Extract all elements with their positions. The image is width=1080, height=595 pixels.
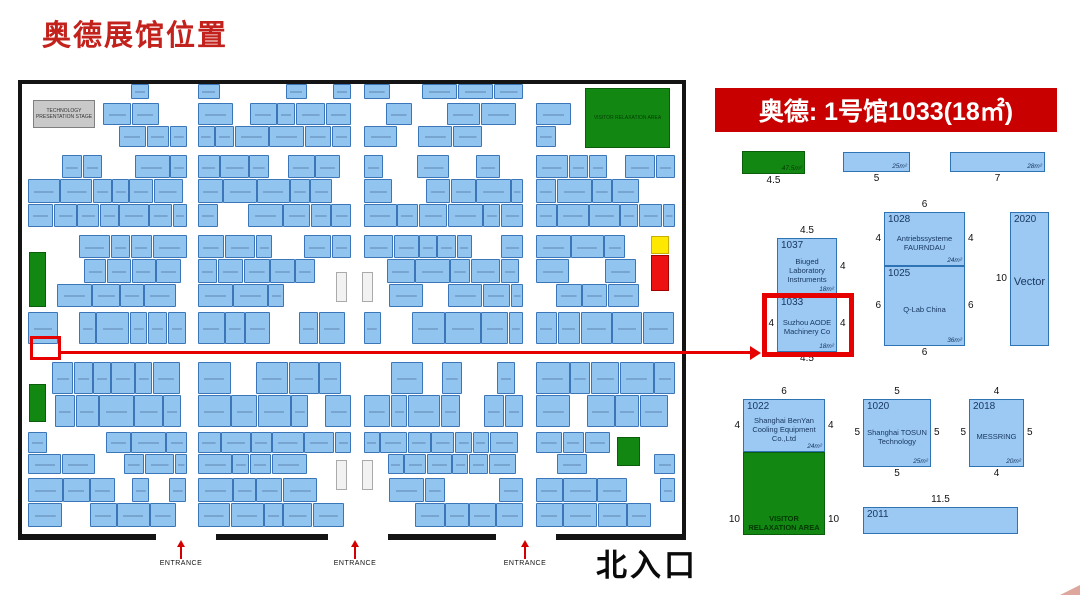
booth-area: 24m² — [947, 257, 962, 264]
map-booth — [198, 432, 221, 453]
map-booth — [471, 259, 501, 282]
map-booth — [135, 155, 170, 178]
map-booth — [93, 179, 112, 202]
map-booth — [149, 204, 172, 227]
map-booth — [612, 312, 642, 344]
map-booth — [481, 103, 516, 125]
map-booth — [319, 362, 341, 394]
map-booth — [333, 84, 351, 99]
booth-name: MESSRING — [974, 423, 1018, 443]
map-booth — [232, 454, 249, 475]
map-booth — [154, 179, 183, 202]
map-booth — [145, 454, 175, 475]
map-booth — [431, 432, 454, 453]
booth-area: 47.5m² — [782, 165, 802, 172]
map-booth — [608, 284, 639, 307]
red-booth — [651, 255, 669, 291]
map-booth — [250, 454, 271, 475]
map-booth — [288, 155, 315, 178]
map-booth — [536, 126, 556, 148]
map-booth — [331, 204, 351, 227]
map-booth — [57, 284, 92, 307]
map-booth — [415, 503, 444, 527]
dimension-label: 5 — [934, 427, 948, 438]
map-booth — [269, 126, 304, 148]
map-booth — [96, 312, 129, 344]
map-booth — [198, 312, 225, 344]
map-booth — [497, 362, 515, 394]
map-booth — [563, 478, 597, 502]
entrance-label: ENTRANCE — [495, 560, 555, 567]
map-booth — [166, 432, 187, 453]
map-booth — [569, 155, 588, 178]
booth-location-banner: 奥德: 1号馆1033(18㎡) — [715, 88, 1057, 132]
map-booth — [170, 126, 188, 148]
map-booth — [442, 362, 462, 394]
map-booth — [447, 103, 481, 125]
dimension-label: 4.5 — [777, 225, 837, 236]
map-booth — [605, 259, 636, 282]
map-booth — [220, 155, 249, 178]
technology-presentation-stage: TECHNOLOGY PRESENTATION STAGE — [33, 100, 95, 128]
detail-highlight-box — [762, 293, 854, 357]
map-booth — [563, 432, 584, 453]
map-booth — [380, 432, 407, 453]
map-booth — [268, 284, 284, 307]
map-booth — [144, 284, 176, 307]
map-booth — [536, 259, 569, 282]
green-area — [29, 384, 46, 422]
green-area — [617, 437, 640, 466]
map-booth — [585, 432, 611, 453]
map-booth — [455, 432, 473, 453]
map-booth — [536, 179, 556, 202]
map-booth — [233, 284, 268, 307]
map-booth — [536, 432, 562, 453]
map-booth — [364, 126, 397, 148]
map-booth — [591, 362, 620, 394]
dimension-label: 11.5 — [863, 494, 1018, 505]
map-booth — [452, 454, 468, 475]
map-booth — [490, 432, 519, 453]
map-booth — [557, 204, 588, 227]
map-booth — [223, 179, 256, 202]
detail-booth-1022: 1022Shanghai BenYan Cooling Equipment Co… — [743, 399, 825, 452]
map-booth — [536, 362, 570, 394]
map-booth — [225, 235, 256, 258]
map-booth — [326, 103, 352, 125]
map-booth — [198, 155, 220, 178]
map-booth — [244, 259, 270, 282]
map-booth — [445, 312, 480, 344]
map-booth — [77, 204, 99, 227]
green-area — [29, 252, 46, 307]
booth-number: 1022 — [747, 401, 769, 412]
map-booth — [132, 259, 156, 282]
map-booth — [557, 179, 592, 202]
map-booth — [112, 179, 128, 202]
map-booth — [90, 478, 115, 502]
dimension-label: 5 — [863, 468, 931, 479]
map-booth — [389, 478, 424, 502]
map-booth — [256, 478, 282, 502]
map-booth — [283, 478, 318, 502]
map-booth — [418, 126, 453, 148]
map-booth — [249, 155, 269, 178]
map-booth — [419, 235, 437, 258]
map-booth — [364, 179, 392, 202]
map-booth — [251, 432, 272, 453]
map-booth — [332, 126, 352, 148]
map-booth — [536, 204, 557, 227]
map-bottom-border-segment — [388, 534, 496, 540]
booth-area: 36m² — [947, 337, 962, 344]
map-booth — [408, 432, 431, 453]
map-booth — [52, 362, 73, 394]
connector-arrow — [750, 346, 761, 360]
map-booth — [100, 204, 119, 227]
dimension-label: 6 — [743, 386, 825, 397]
map-booth — [258, 395, 291, 427]
dimension-label: 5 — [847, 427, 860, 438]
map-booth — [84, 259, 106, 282]
map-booth — [597, 478, 626, 502]
map-booth — [489, 454, 517, 475]
booth-area: 28m² — [1027, 163, 1042, 170]
map-booth — [289, 362, 319, 394]
booth-number: 2020 — [1014, 214, 1036, 225]
map-booth — [270, 259, 295, 282]
map-booth — [76, 395, 99, 427]
map-booth — [536, 235, 571, 258]
map-booth — [28, 204, 53, 227]
map-booth — [131, 84, 149, 99]
map-booth — [198, 478, 233, 502]
map-booth — [92, 284, 120, 307]
map-booth — [663, 204, 676, 227]
map-booth — [250, 103, 277, 125]
booth-area: 25m² — [892, 163, 907, 170]
map-booth — [536, 103, 571, 125]
map-booth — [473, 432, 489, 453]
map-booth — [231, 395, 257, 427]
booth-number: 1020 — [867, 401, 889, 412]
map-booth — [117, 503, 150, 527]
map-booth — [484, 395, 504, 427]
dimension-label: 6 — [968, 300, 982, 311]
map-booth — [391, 362, 423, 394]
map-booth — [198, 362, 231, 394]
map-booth — [28, 454, 61, 475]
map-booth — [422, 84, 457, 99]
map-booth — [90, 503, 117, 527]
visitor-relaxation-area: VISITOR RELAXATION AREA — [585, 88, 670, 148]
detail-booth-strip-28: 28m² — [950, 152, 1045, 172]
map-booth — [571, 235, 604, 258]
map-booth — [604, 235, 625, 258]
map-booth — [107, 259, 131, 282]
detail-booth-1025: 1025Q-Lab China36m² — [884, 266, 965, 346]
map-booth — [589, 155, 608, 178]
detail-booth-1037: 1037Biuged Laboratory Instruments18m² — [777, 238, 837, 295]
map-booth — [198, 235, 224, 258]
map-booth — [563, 503, 597, 527]
map-booth — [299, 312, 318, 344]
map-booth — [445, 503, 469, 527]
map-booth — [417, 155, 449, 178]
map-booth — [296, 103, 325, 125]
map-booth — [135, 362, 152, 394]
map-booth — [612, 179, 639, 202]
map-booth — [536, 478, 563, 502]
dimension-label: 4 — [868, 233, 881, 244]
map-booth — [509, 312, 523, 344]
booth-name: Shanghai TOSUN Technology — [864, 419, 930, 448]
dimension-label: 4 — [969, 386, 1024, 397]
map-booth — [325, 395, 351, 427]
map-booth — [290, 179, 310, 202]
map-booth — [304, 235, 331, 258]
detail-booth-1020: 1020Shanghai TOSUN Technology25m² — [863, 399, 931, 467]
detail-booth-green-47: 47.5m² — [742, 151, 805, 174]
dimension-label: 10 — [727, 514, 740, 525]
dimension-label: 10 — [994, 273, 1007, 284]
map-booth — [654, 362, 675, 394]
detail-booth-2018: 2018MESSRING20m² — [969, 399, 1024, 467]
map-booth — [198, 179, 223, 202]
entrance-label: ENTRANCE — [151, 560, 211, 567]
map-booth — [313, 503, 344, 527]
dimension-label: 4 — [727, 420, 740, 431]
map-booth — [163, 395, 181, 427]
map-booth — [305, 126, 331, 148]
map-booth — [570, 362, 590, 394]
connector-line — [61, 351, 750, 354]
map-booth — [627, 503, 650, 527]
map-booth — [415, 259, 449, 282]
map-bottom-border-segment — [216, 534, 328, 540]
map-booth — [74, 362, 93, 394]
map-booth — [582, 284, 607, 307]
map-booth — [198, 284, 233, 307]
entrance-label: ENTRANCE — [325, 560, 385, 567]
map-booth — [130, 312, 147, 344]
map-booth — [62, 155, 82, 178]
map-booth — [389, 284, 423, 307]
map-booth — [397, 204, 418, 227]
dimension-label: 5 — [863, 386, 931, 397]
booth-number: 2018 — [973, 401, 995, 412]
map-booth — [419, 204, 448, 227]
entrance-arrow — [524, 546, 526, 559]
map-booth — [448, 284, 482, 307]
map-booth — [311, 204, 331, 227]
booth-area: 18m² — [819, 286, 834, 293]
map-booth — [386, 103, 413, 125]
map-booth — [501, 259, 519, 282]
map-booth — [119, 126, 147, 148]
map-booth — [99, 395, 134, 427]
map-booth — [476, 155, 500, 178]
map-booth — [283, 503, 312, 527]
map-booth — [28, 432, 47, 453]
map-booth — [264, 503, 282, 527]
map-booth — [387, 259, 415, 282]
map-booth — [556, 284, 581, 307]
dimension-label: 5 — [843, 173, 910, 184]
booth-name: Antriebssysteme FAURNDAU — [885, 225, 964, 254]
corner-mark — [1060, 585, 1080, 595]
map-booth — [120, 284, 143, 307]
booth-name: Biuged Laboratory Instruments — [778, 248, 836, 286]
detail-booth-1028: 1028Antriebssysteme FAURNDAU24m² — [884, 212, 965, 266]
map-booth — [448, 204, 483, 227]
map-booth — [501, 204, 524, 227]
map-booth — [83, 155, 103, 178]
dimension-label: 4 — [968, 233, 982, 244]
booth-area: 25m² — [913, 458, 928, 465]
detail-booth-2020: 2020Vector — [1010, 212, 1049, 346]
map-bottom-border-segment — [18, 534, 156, 540]
booth-name: VISITOR RELAXATION AREA — [744, 512, 824, 534]
map-booth — [173, 204, 188, 227]
booth-number: 1028 — [888, 214, 910, 225]
booth-name: Vector — [1012, 269, 1047, 289]
map-booth — [476, 179, 511, 202]
map-booth — [28, 179, 60, 202]
map-booth — [156, 259, 181, 282]
map-booth — [170, 155, 187, 178]
map-booth — [450, 259, 470, 282]
map-booth — [536, 395, 570, 427]
dimension-label: 7 — [950, 173, 1045, 184]
map-booth — [103, 103, 131, 125]
map-booth — [558, 312, 580, 344]
map-booth — [272, 454, 307, 475]
map-booth — [592, 179, 611, 202]
map-booth — [225, 312, 245, 344]
page-title: 奥德展馆位置 — [42, 12, 228, 54]
map-booth — [111, 362, 135, 394]
booth-number: 1037 — [781, 240, 803, 251]
entrance-arrow — [180, 546, 182, 559]
map-booth — [304, 432, 334, 453]
map-booth — [198, 454, 232, 475]
map-booth — [425, 478, 445, 502]
map-booth — [483, 204, 500, 227]
map-booth — [132, 103, 159, 125]
map-booth — [198, 204, 218, 227]
map-booth — [93, 362, 110, 394]
map-booth — [364, 312, 381, 344]
map-booth — [315, 155, 340, 178]
map-booth — [408, 395, 440, 427]
map-booth — [134, 395, 162, 427]
map-booth — [640, 395, 669, 427]
main-map: TECHNOLOGY PRESENTATION STAGEVISITOR REL… — [18, 80, 686, 538]
map-booth — [620, 204, 638, 227]
booth-area: 20m² — [1006, 458, 1021, 465]
map-booth — [481, 312, 508, 344]
map-booth — [148, 312, 168, 344]
map-booth — [511, 179, 523, 202]
map-booth — [124, 454, 144, 475]
dimension-label: 5 — [953, 427, 966, 438]
map-booth — [437, 235, 456, 258]
map-booth — [536, 312, 557, 344]
map-booth — [501, 235, 524, 258]
map-booth — [457, 235, 473, 258]
map-booth — [215, 126, 234, 148]
map-booth — [310, 179, 332, 202]
booth-name: Shanghai BenYan Cooling Equipment Co.,Lt… — [744, 407, 824, 445]
map-booth — [153, 362, 180, 394]
map-booth — [28, 503, 62, 527]
map-booth — [277, 103, 295, 125]
map-booth — [639, 204, 662, 227]
map-booth — [257, 179, 289, 202]
map-booth — [441, 395, 461, 427]
map-booth — [335, 432, 352, 453]
map-booth — [272, 432, 303, 453]
map-booth — [412, 312, 445, 344]
map-booth — [198, 84, 220, 99]
north-entrance-label: 北入口 — [596, 540, 698, 585]
map-booth — [364, 204, 397, 227]
map-booth — [451, 179, 476, 202]
detail-booth-strip-25: 25m² — [843, 152, 910, 172]
map-booth — [557, 454, 587, 475]
map-booth — [28, 478, 63, 502]
map-booth — [221, 432, 251, 453]
map-booth — [218, 259, 243, 282]
map-booth — [494, 84, 524, 99]
map-booth — [469, 503, 495, 527]
map-booth — [153, 235, 187, 258]
map-booth — [62, 454, 96, 475]
map-booth — [233, 478, 256, 502]
map-booth — [615, 395, 639, 427]
booth-number: 1025 — [888, 268, 910, 279]
map-booth — [656, 155, 676, 178]
map-booth — [168, 312, 186, 344]
map-booth — [364, 395, 390, 427]
map-booth — [231, 503, 264, 527]
booth-number: 2011 — [867, 509, 889, 520]
map-booth — [453, 126, 482, 148]
map-booth — [598, 503, 627, 527]
map-booth — [426, 179, 451, 202]
map-booth — [198, 126, 215, 148]
map-booth — [496, 503, 523, 527]
map-booth — [256, 235, 273, 258]
map-booth — [235, 126, 269, 148]
map-booth — [643, 312, 675, 344]
map-booth — [169, 478, 186, 502]
map-booth — [286, 84, 307, 99]
dimension-label: 4 — [969, 468, 1024, 479]
pillar — [362, 460, 373, 490]
map-booth — [391, 395, 407, 427]
booth-name: Q-Lab China — [901, 296, 948, 316]
map-booth — [106, 432, 130, 453]
dimension-label: 6 — [868, 300, 881, 311]
map-booth — [63, 478, 89, 502]
map-booth — [198, 503, 230, 527]
map-booth — [364, 432, 380, 453]
map-booth — [581, 312, 612, 344]
map-booth — [55, 395, 75, 427]
